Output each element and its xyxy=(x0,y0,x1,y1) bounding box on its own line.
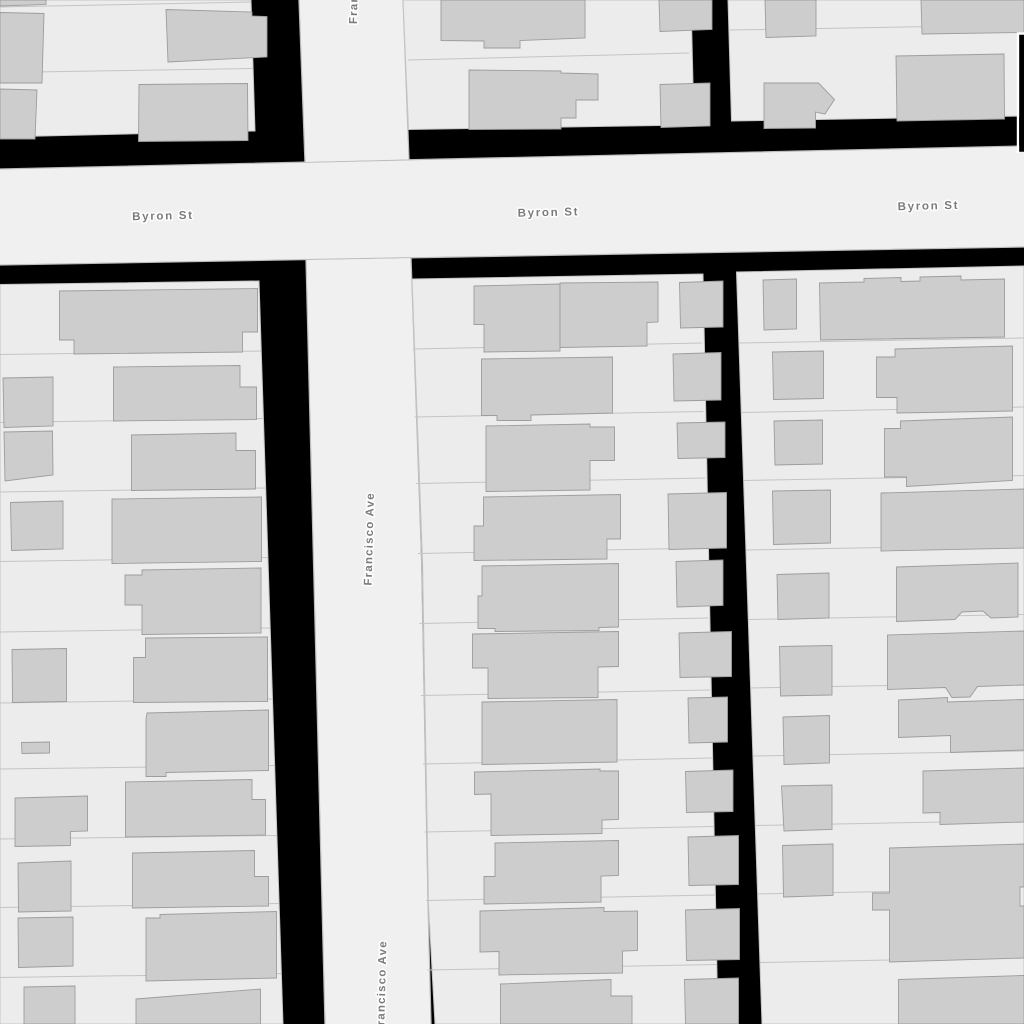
svg-text:Byron St: Byron St xyxy=(132,210,194,223)
svg-text:Francisco Ave: Francisco Ave xyxy=(363,492,377,586)
svg-text:Francisco Ave: Francisco Ave xyxy=(375,940,389,1024)
svg-text:Byron St: Byron St xyxy=(518,206,580,219)
svg-text:Byron St: Byron St xyxy=(898,200,960,213)
